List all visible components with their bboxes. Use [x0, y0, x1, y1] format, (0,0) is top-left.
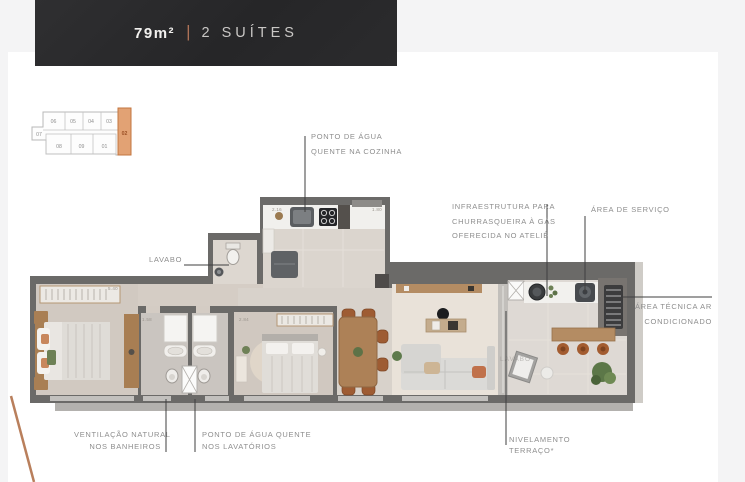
toilet — [227, 250, 239, 265]
callout-agua-lavatorios: PONTO DE ÁGUA QUENTE NOS LAVATÓRIOS — [202, 429, 311, 453]
windows — [50, 396, 488, 401]
decorative-diagonal-line — [11, 396, 34, 482]
shaft-terrace — [508, 281, 524, 300]
dimension-label: 2.84 — [239, 317, 249, 322]
dimension-label: 1.80 — [372, 207, 382, 212]
cooktop — [319, 208, 337, 226]
callout-line: QUENTE NA COZINHA — [311, 145, 402, 160]
callout-agua-cozinha: PONTO DE ÁGUA QUENTE NA COZINHA — [311, 130, 402, 159]
plant — [242, 346, 250, 354]
callout-line: INFRAESTRUTURA PARA — [452, 200, 549, 215]
callout-line: VENTILAÇÃO NATURAL — [74, 429, 161, 441]
callout-line: LAVABO — [149, 253, 182, 268]
callout-line: NOS LAVATÓRIOS — [202, 441, 311, 453]
callout-lavabo: LAVABO — [149, 253, 182, 268]
decor-plant — [275, 212, 283, 220]
floor-plan-page: 79m² | 2 SUÍTES 06 05 04 03 07 08 09 01 … — [0, 0, 745, 482]
callout-line: CONDICIONADO — [628, 315, 712, 330]
bar-counter — [552, 328, 615, 341]
dimension-label: 5.40 — [108, 286, 118, 291]
callout-area-tecnica-ar: ÁREA TÉCNICA AR CONDICIONADO — [628, 300, 712, 329]
side-table — [318, 348, 326, 356]
callout-area-servico: ÁREA DE SERVIÇO — [591, 203, 670, 218]
dimension-label: 2.16 — [272, 207, 282, 212]
stool — [541, 367, 553, 379]
callout-line: ÁREA DE SERVIÇO — [591, 203, 670, 218]
callout-line: NOS BANHEIROS — [74, 441, 161, 453]
callout-line: PONTO DE ÁGUA QUENTE — [202, 429, 311, 441]
callout-line: ÁREA TÉCNICA AR — [628, 300, 712, 315]
wardrobe-suite-2 — [277, 314, 333, 326]
shaft-bathrooms — [182, 366, 197, 393]
bed-suite-1 — [35, 322, 110, 380]
callout-churrasqueira: INFRAESTRUTURA PARA CHURRASQUEIRA À GÁS … — [452, 200, 549, 244]
shower — [193, 315, 217, 342]
floor-plan-drawing: LAVABO 5.40 2.16 1.80 1.58 2.84 — [0, 0, 745, 482]
callout-ventilacao: VENTILAÇÃO NATURAL NOS BANHEIROS — [74, 429, 161, 453]
cabinet — [375, 274, 389, 288]
callout-nivelamento: NIVELAMENTO TERRAÇO* — [509, 434, 570, 456]
callout-line: OFERECIDA NO ATELIÊ — [452, 229, 549, 244]
bar-stools — [557, 343, 609, 355]
wall-clock — [437, 308, 449, 320]
ac-unit — [604, 285, 623, 329]
callout-line: PONTO DE ÁGUA — [311, 130, 402, 145]
bed-suite-2 — [262, 334, 318, 393]
dimension-label: 1.58 — [142, 317, 152, 322]
desk — [236, 356, 247, 382]
callout-line: NIVELAMENTO — [509, 434, 570, 445]
callout-line: CHURRASQUEIRA À GÁS — [452, 215, 549, 230]
centerpiece-plant — [353, 347, 363, 357]
exterior-ledge-bottom — [55, 403, 633, 411]
callout-line: TERRAÇO* — [509, 445, 570, 456]
shower — [164, 315, 187, 342]
floor-text-lavabo: LAVABO — [500, 356, 531, 363]
exterior-ledge-right — [635, 262, 643, 403]
plant — [392, 351, 402, 361]
